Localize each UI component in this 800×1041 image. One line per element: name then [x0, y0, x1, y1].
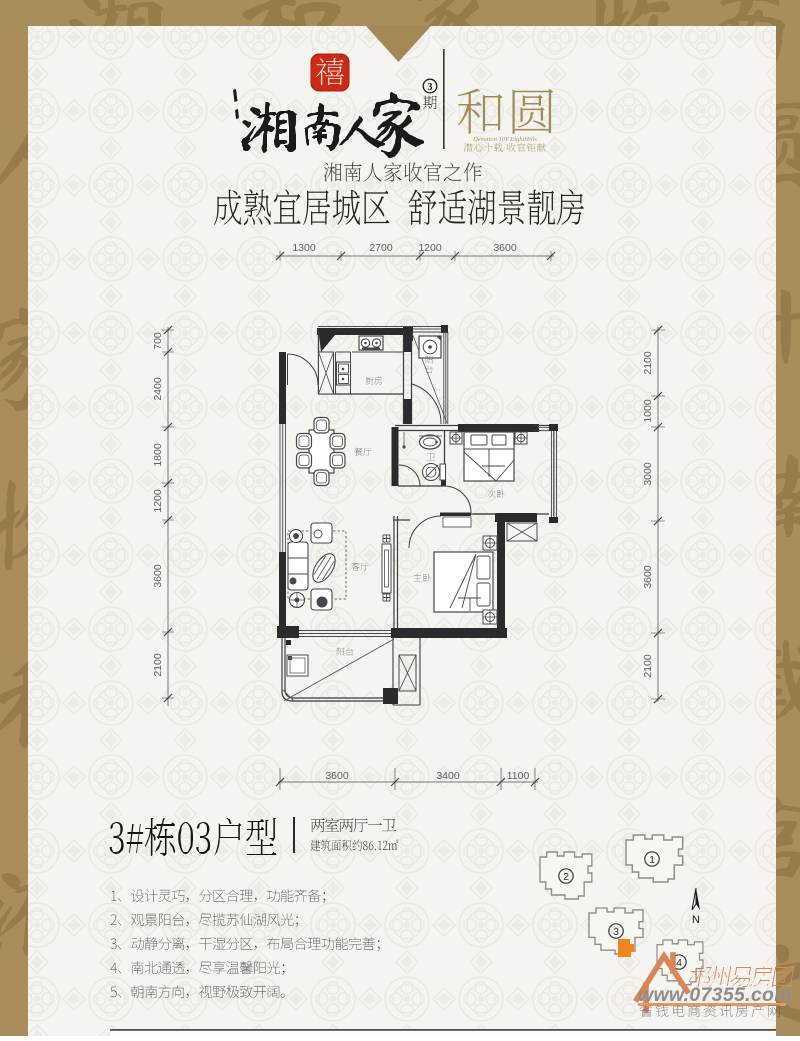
svg-text:1200: 1200 [418, 242, 442, 254]
svg-text:3000: 3000 [642, 462, 654, 486]
svg-text:700: 700 [152, 332, 164, 350]
svg-text:3600: 3600 [325, 770, 349, 782]
svg-text:2100: 2100 [152, 653, 164, 677]
svg-text:3400: 3400 [436, 770, 460, 782]
svg-text:4: 4 [676, 957, 682, 969]
svg-text:1: 1 [649, 854, 655, 866]
svg-text:Devotion 10Y EightHills: Devotion 10Y EightHills [472, 136, 537, 143]
svg-text:1200: 1200 [152, 489, 164, 513]
svg-text:3600: 3600 [642, 565, 654, 589]
svg-text:2100: 2100 [642, 351, 654, 375]
svg-text:3600: 3600 [493, 242, 517, 254]
svg-text:2400: 2400 [152, 377, 164, 401]
svg-text:N: N [692, 914, 700, 926]
svg-text:3600: 3600 [152, 564, 164, 588]
svg-text:1100: 1100 [507, 770, 530, 782]
svg-text:1800: 1800 [152, 443, 164, 467]
svg-text:2700: 2700 [369, 242, 393, 254]
svg-text:www.07355.com: www.07355.com [638, 984, 792, 1006]
svg-text:1300: 1300 [292, 242, 316, 254]
svg-text:1000: 1000 [642, 399, 654, 423]
svg-text:2100: 2100 [642, 654, 654, 678]
svg-text:3: 3 [613, 926, 619, 938]
svg-text:3: 3 [428, 82, 433, 93]
svg-text:2: 2 [563, 871, 569, 883]
